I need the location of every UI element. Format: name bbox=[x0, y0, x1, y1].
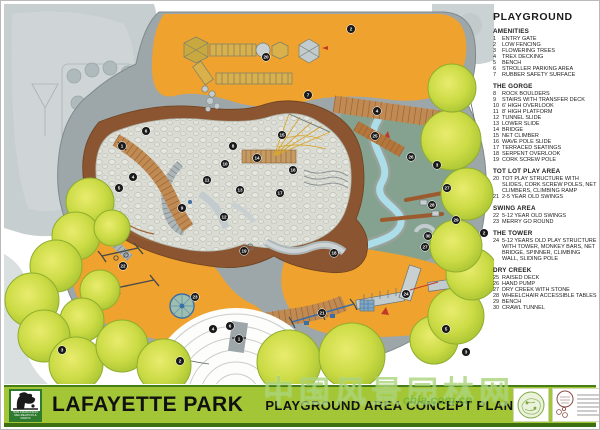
park-name: LAFAYETTE PARK bbox=[52, 393, 243, 417]
map-marker: 27 bbox=[443, 184, 452, 193]
map-marker: 7 bbox=[304, 91, 313, 100]
svg-text:9: 9 bbox=[181, 206, 184, 211]
map-marker: 4 bbox=[209, 325, 218, 334]
legend-item: 245-12 YEARS OLD PLAY STRUCTURE WITH TOW… bbox=[493, 238, 597, 262]
map-marker: 25 bbox=[371, 132, 380, 141]
svg-text:15: 15 bbox=[279, 133, 285, 138]
svg-text:30: 30 bbox=[425, 234, 431, 239]
map-marker: 17 bbox=[276, 189, 285, 198]
legend-section-title: TOT LOT PLAY AREA bbox=[493, 168, 597, 175]
legend-item-label: CRAWL TUNNEL bbox=[502, 305, 597, 311]
map-marker: 24 bbox=[402, 290, 411, 299]
svg-text:21: 21 bbox=[319, 311, 325, 316]
svg-text:13: 13 bbox=[237, 188, 243, 193]
consultant-logos bbox=[513, 388, 600, 422]
legend-item: 23MERRY GO ROUND bbox=[493, 219, 597, 225]
title-bar: SAN FRANCISCO RECREATION & PARKS LAFAYET… bbox=[4, 385, 596, 427]
map-marker: 9 bbox=[178, 204, 187, 213]
svg-text:23: 23 bbox=[192, 295, 198, 300]
svg-text:16: 16 bbox=[290, 168, 296, 173]
map-marker: 30 bbox=[424, 232, 433, 241]
svg-text:1: 1 bbox=[121, 144, 124, 149]
map-marker: 2 bbox=[176, 357, 185, 366]
svg-text:4: 4 bbox=[132, 175, 135, 180]
svg-text:22: 22 bbox=[120, 264, 126, 269]
map-marker: 18 bbox=[330, 249, 339, 258]
svg-text:18: 18 bbox=[331, 251, 337, 256]
legend-item: 20TOT PLAY STRUCTURE WITH SLIDES, CORK S… bbox=[493, 176, 597, 194]
legend-item-label: 2-5 YEAR OLD SWINGS bbox=[502, 194, 597, 200]
legend-item: 7RUBBER SAFETY SURFACE bbox=[493, 72, 597, 78]
svg-text:19: 19 bbox=[241, 249, 247, 254]
svg-text:5: 5 bbox=[118, 186, 121, 191]
legend-section-title: DRY CREEK bbox=[493, 267, 597, 274]
svg-text:3: 3 bbox=[465, 350, 468, 355]
map-marker: 5 bbox=[115, 184, 124, 193]
map-marker: 13 bbox=[236, 186, 245, 195]
map-marker: 5 bbox=[442, 325, 451, 334]
svg-text:14: 14 bbox=[254, 156, 260, 161]
map-marker: 6 bbox=[142, 127, 151, 136]
map-marker: 16 bbox=[289, 166, 298, 175]
svg-text:2: 2 bbox=[179, 359, 182, 364]
map-marker: 3 bbox=[58, 346, 67, 355]
svg-text:17: 17 bbox=[277, 191, 283, 196]
agency-logo-line2: RECREATION & PARKS bbox=[11, 414, 40, 420]
legend-section-title: AMENITIES bbox=[493, 28, 597, 35]
map-marker: 3 bbox=[433, 161, 442, 170]
map-marker: 8 bbox=[229, 142, 238, 151]
legend-section-title: THE GORGE bbox=[493, 83, 597, 90]
svg-text:2: 2 bbox=[350, 27, 353, 32]
plan-title: PLAYGROUND AREA CONCEPT PLAN bbox=[265, 398, 513, 413]
legend-item-number: 20 bbox=[493, 176, 502, 194]
legend-item-label: MERRY GO ROUND bbox=[502, 219, 597, 225]
legend-sections: AMENITIES1ENTRY GATE2LOW FENCING3FLOWERI… bbox=[493, 28, 597, 311]
legend-item-number: 21 bbox=[493, 194, 502, 200]
map-marker: 3 bbox=[462, 348, 471, 357]
merry-go-round bbox=[170, 294, 194, 318]
svg-text:5: 5 bbox=[445, 327, 448, 332]
map-marker: 22 bbox=[119, 262, 128, 271]
svg-text:6: 6 bbox=[145, 129, 148, 134]
map-marker: 19 bbox=[240, 247, 249, 256]
svg-text:4: 4 bbox=[212, 327, 215, 332]
map-marker: 4 bbox=[129, 173, 138, 182]
map-marker: 26 bbox=[407, 153, 416, 162]
map-marker: 15 bbox=[278, 131, 287, 140]
parks-department-logo: SAN FRANCISCO RECREATION & PARKS bbox=[9, 389, 42, 422]
playground-plan-drawing: 1456220781510111416131791219184252632728… bbox=[4, 4, 494, 384]
map-marker: 6 bbox=[226, 322, 235, 331]
tree-icon bbox=[11, 391, 40, 411]
svg-text:24: 24 bbox=[403, 292, 409, 297]
legend-item-number: 23 bbox=[493, 219, 502, 225]
map-marker: 4 bbox=[373, 107, 382, 116]
svg-text:2: 2 bbox=[483, 231, 486, 236]
landscape-architect-stamp bbox=[552, 388, 600, 422]
legend-item: 212-5 YEAR OLD SWINGS bbox=[493, 194, 597, 200]
svg-text:20: 20 bbox=[263, 55, 269, 60]
svg-text:29: 29 bbox=[453, 218, 459, 223]
legend-item: 30CRAWL TUNNEL bbox=[493, 305, 597, 311]
legend-item-label: CORK SCREW POLE bbox=[502, 157, 597, 163]
svg-text:4: 4 bbox=[376, 109, 379, 114]
svg-text:7: 7 bbox=[307, 93, 310, 98]
svg-text:28: 28 bbox=[429, 203, 435, 208]
svg-text:27: 27 bbox=[422, 245, 428, 250]
map-marker: 11 bbox=[203, 176, 212, 185]
legend-item-label: 5-12 YEARS OLD PLAY STRUCTURE WITH TOWER… bbox=[502, 238, 597, 262]
map-marker: 1 bbox=[235, 335, 244, 344]
legend-panel: PLAYGROUND AMENITIES1ENTRY GATE2LOW FENC… bbox=[493, 11, 597, 311]
svg-text:27: 27 bbox=[444, 186, 450, 191]
map-marker: 12 bbox=[220, 213, 229, 222]
svg-text:1: 1 bbox=[238, 337, 241, 342]
svg-text:6: 6 bbox=[229, 324, 232, 329]
site-plan-logo bbox=[513, 388, 549, 422]
legend-item-number: 24 bbox=[493, 238, 502, 262]
map-marker: 20 bbox=[262, 53, 271, 62]
legend-item-label: RUBBER SAFETY SURFACE bbox=[502, 72, 597, 78]
svg-text:10: 10 bbox=[222, 162, 228, 167]
legend-item-number: 30 bbox=[493, 305, 502, 311]
map-marker: 2 bbox=[480, 229, 489, 238]
svg-text:26: 26 bbox=[408, 155, 414, 160]
legend-section-title: SWING AREA bbox=[493, 205, 597, 212]
map-marker: 14 bbox=[253, 154, 262, 163]
map-marker: 21 bbox=[318, 309, 327, 318]
map-marker: 28 bbox=[428, 201, 437, 210]
map-marker: 27 bbox=[421, 243, 430, 252]
map-marker: 23 bbox=[191, 293, 200, 302]
legend-item-label: TOT PLAY STRUCTURE WITH SLIDES, CORK SCR… bbox=[502, 176, 597, 194]
svg-text:8: 8 bbox=[232, 144, 235, 149]
agency-logo-text: SAN FRANCISCO RECREATION & PARKS bbox=[11, 411, 40, 420]
svg-text:3: 3 bbox=[61, 348, 64, 353]
svg-text:11: 11 bbox=[205, 178, 210, 183]
concept-plan-sheet: 1456220781510111416131791219184252632728… bbox=[0, 0, 600, 430]
legend-item: 19CORK SCREW POLE bbox=[493, 157, 597, 163]
legend-section-title: THE TOWER bbox=[493, 230, 597, 237]
svg-text:12: 12 bbox=[221, 215, 227, 220]
map-marker: 29 bbox=[452, 216, 461, 225]
legend-item-number: 19 bbox=[493, 157, 502, 163]
legend-title: PLAYGROUND bbox=[493, 11, 597, 23]
map-marker: 10 bbox=[221, 160, 230, 169]
svg-text:25: 25 bbox=[372, 134, 378, 139]
legend-item-number: 7 bbox=[493, 72, 502, 78]
map-marker: 1 bbox=[118, 142, 127, 151]
svg-text:3: 3 bbox=[436, 163, 439, 168]
map-marker: 2 bbox=[347, 25, 356, 34]
